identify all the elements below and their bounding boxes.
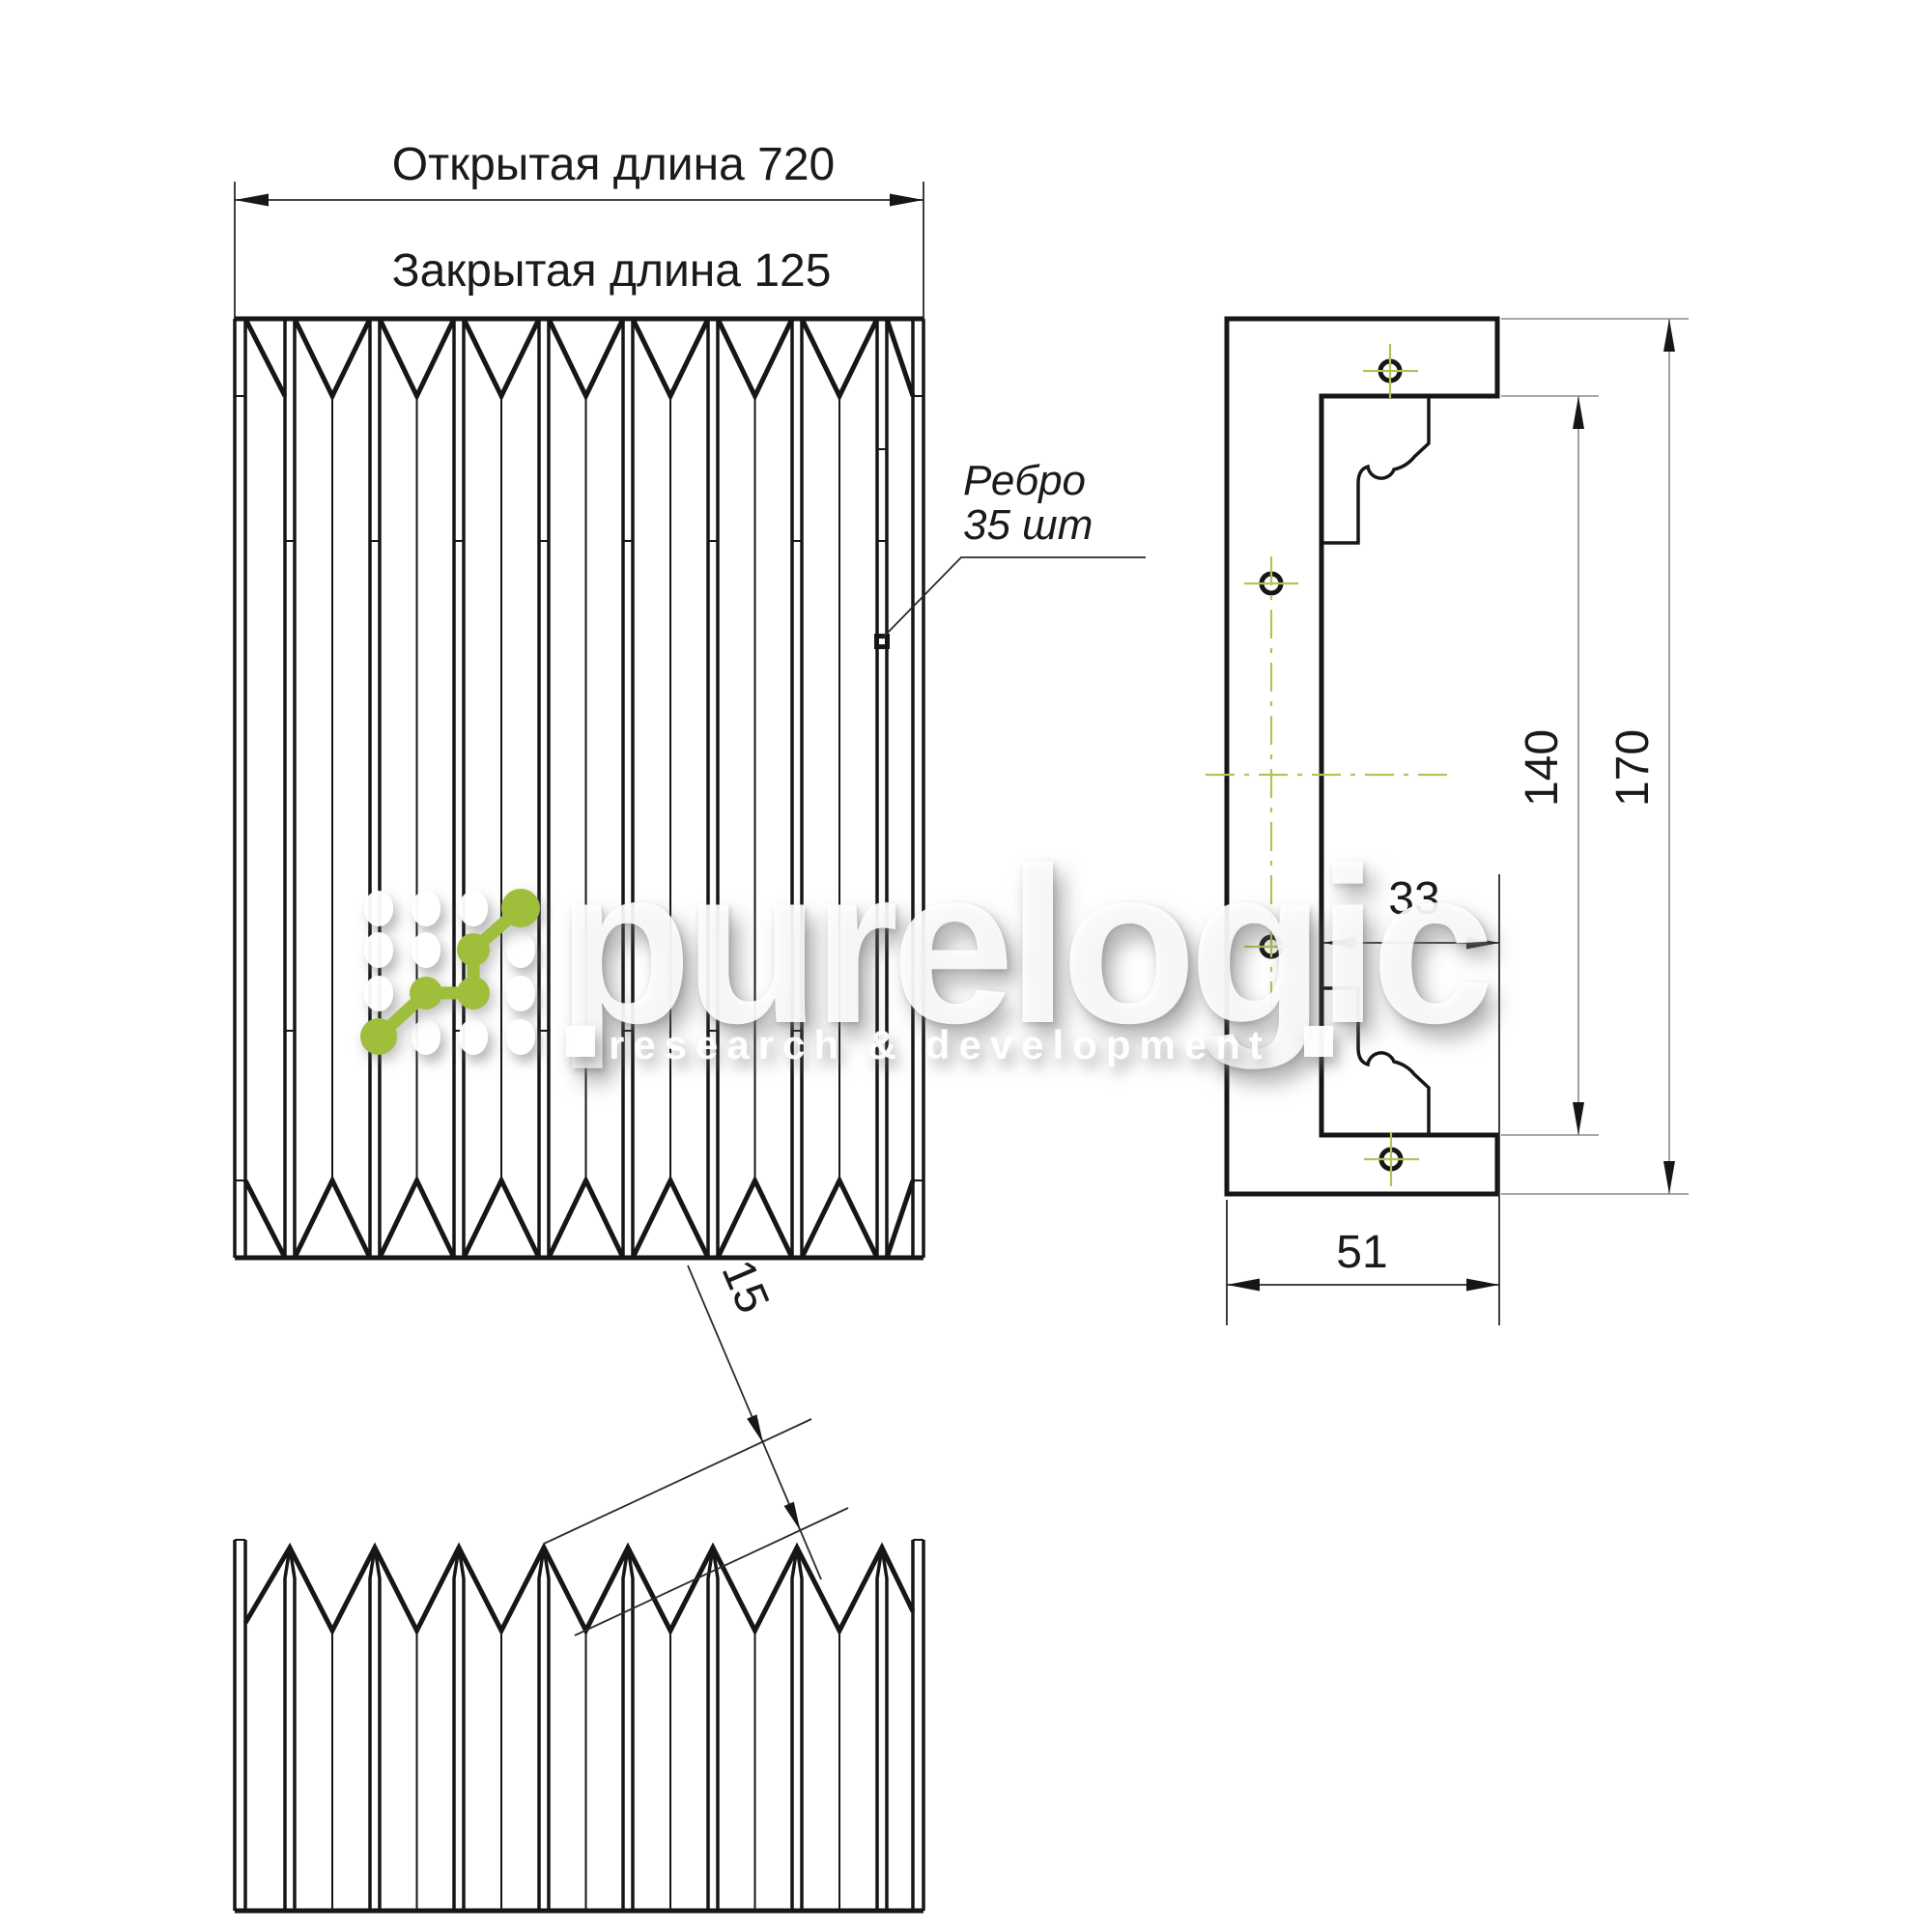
centerlines: [1206, 344, 1454, 1186]
front-view-border-strips: [235, 319, 923, 1258]
dim-170: 170: [1607, 729, 1659, 807]
rib-note-line2: 35 шт: [963, 501, 1093, 549]
open-length-label: Открытая длина 720: [392, 139, 835, 190]
closed-length-label: Закрытая длина 125: [392, 245, 832, 297]
bottom-notch-profile: [1321, 988, 1429, 1135]
dim-33: 33: [1388, 873, 1439, 924]
side-view: 140 170 33 51: [1206, 319, 1689, 1325]
top-notch-profile: [1321, 396, 1429, 543]
fold-valley-lines: [332, 1631, 839, 1911]
fold-lines-singles: [332, 396, 839, 1180]
dim-15: 15: [711, 1253, 779, 1321]
rib-note-line1: Ребро: [963, 457, 1086, 504]
rib-callout: Ребро 35 шт: [874, 457, 1146, 649]
dim-140: 140: [1517, 729, 1568, 807]
mounting-holes: [1262, 361, 1401, 1169]
length-dimension: Открытая длина 720 Закрытая длина 125: [235, 139, 923, 319]
top-zigzag: [245, 319, 913, 396]
front-view: Открытая длина 720 Закрытая длина 125: [235, 139, 1146, 1258]
drawing-page: Открытая длина 720 Закрытая длина 125: [0, 0, 1932, 1932]
front-view-edges: [235, 319, 923, 1258]
dim-51: 51: [1336, 1227, 1387, 1278]
technical-drawing-canvas: Открытая длина 720 Закрытая длина 125: [0, 0, 1932, 1932]
bottom-view: 15: [235, 1253, 923, 1911]
bottom-zigzag: [245, 1180, 913, 1258]
border-strip-ticks: [235, 396, 923, 1180]
height-dimensions: 140 170: [1501, 319, 1689, 1194]
width-dimension-51: 51: [1227, 1200, 1499, 1325]
